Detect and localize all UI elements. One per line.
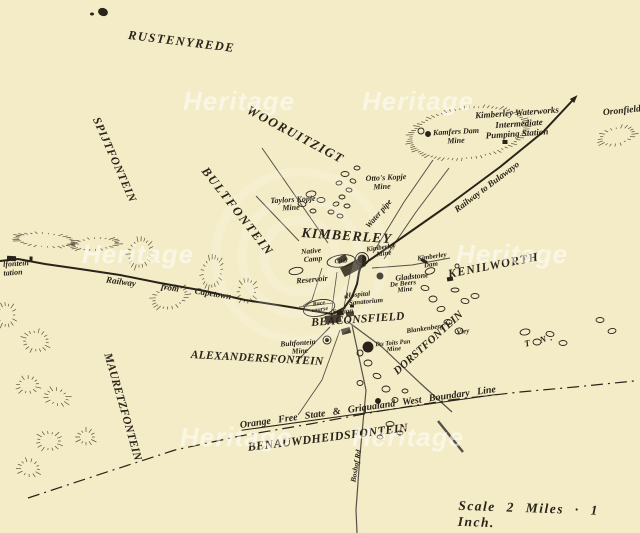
mine-marker [418, 128, 424, 134]
building-marker [7, 256, 16, 261]
mine-marker [376, 399, 381, 404]
hill-hachure [67, 237, 123, 251]
road-line [438, 421, 463, 452]
pond [424, 266, 435, 275]
pond [437, 306, 446, 312]
pond [559, 341, 567, 346]
ink-blob [90, 13, 94, 16]
scale-label: Scale 2 Miles · 1 Inch. [457, 498, 640, 533]
building-marker [503, 140, 508, 144]
pond [397, 431, 403, 435]
hill-hachure [0, 302, 17, 328]
mine-marker [455, 264, 459, 268]
hill-hachure [12, 232, 79, 249]
map-canvas: RUSTENYREDEWOORUITZIGTSPIJTFONTEINBULTFO… [0, 0, 640, 533]
pond [461, 298, 470, 304]
watermark-ring [264, 220, 336, 292]
pond [344, 204, 350, 208]
pond [382, 386, 390, 392]
mine-marker [363, 342, 373, 352]
pond [310, 209, 316, 213]
building-marker [447, 277, 454, 282]
pond [455, 327, 464, 334]
railway-line [361, 101, 572, 266]
pond [364, 360, 372, 366]
hill-hachure [36, 431, 63, 451]
hill-hachure [21, 329, 51, 353]
hill-hachure [597, 124, 638, 146]
pond [357, 381, 363, 386]
hill-hachure [16, 457, 41, 477]
pond [471, 294, 479, 299]
building-marker [350, 305, 354, 308]
building-marker [336, 310, 343, 316]
pond [429, 296, 437, 302]
pond [288, 266, 303, 275]
road-line [384, 168, 449, 259]
hill-hachure [75, 427, 96, 445]
hill-hachure [16, 375, 42, 394]
pond [339, 195, 345, 199]
pond [392, 398, 398, 403]
pond [402, 389, 408, 393]
pond [451, 288, 459, 292]
ink-blob [97, 7, 109, 18]
hill-hachure [405, 105, 531, 162]
pond [596, 318, 604, 323]
pond [386, 422, 394, 427]
pond [349, 178, 356, 184]
building-marker [29, 256, 32, 261]
hill-hachure [43, 387, 71, 407]
mine-marker [426, 132, 431, 137]
road-line [347, 321, 452, 412]
watermark-ring [242, 198, 358, 314]
pond [421, 285, 430, 291]
pond [444, 320, 452, 325]
pond [608, 328, 617, 334]
hill-hachure [126, 236, 153, 270]
pond [341, 172, 349, 177]
pond [377, 435, 384, 440]
boundary-line [28, 381, 634, 498]
pond [354, 166, 360, 170]
pond [520, 328, 531, 336]
map-artwork [0, 0, 640, 533]
pond [372, 373, 381, 380]
